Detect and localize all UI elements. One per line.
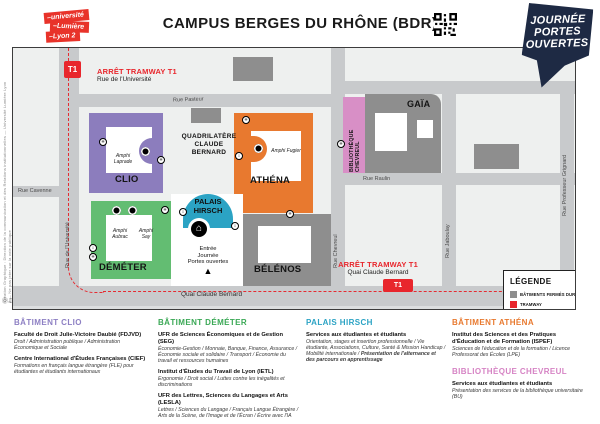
- logo-line: –Lyon 2: [46, 30, 81, 43]
- jpo-main-welcome: ⌂: [188, 218, 210, 240]
- demeter-label: DÉMÉTER: [99, 262, 147, 273]
- tram-stop-badge-t1: T1: [64, 61, 81, 78]
- gaia-label: GAÏA: [407, 99, 430, 109]
- ascenseur-icon: ✳: [286, 210, 294, 218]
- entry-name: Institut des Sciences et des Pratiques d…: [452, 332, 588, 346]
- tram-stop-right: ARRÊT TRAMWAY T1 Quai Claude Bernard: [313, 260, 443, 276]
- tram-stop-title: ARRÊT TRAMWAY T1: [97, 67, 177, 76]
- amphi-say-label: Amphi Say: [134, 229, 158, 240]
- campus-map: Rue Pasteur Rue Cavenne Rue de l'Univers…: [12, 47, 576, 310]
- legend-label: TRAMWAY: [520, 302, 542, 307]
- palais-line: HIRSCH: [183, 207, 233, 216]
- ascenseur-icon: ✳: [242, 116, 250, 124]
- credit-text: Création Graphique : Direction de la com…: [2, 78, 12, 303]
- street-label-jaboulay: Rue Jaboulay: [445, 198, 451, 258]
- quadrilatere-line: CLAUDE: [163, 141, 255, 149]
- elevateur-icon: ↕: [179, 208, 187, 216]
- street-label-raulin: Rue Raulin: [363, 176, 390, 182]
- elevateur-icon: ↕: [89, 244, 97, 252]
- clio-label: CLIO: [115, 174, 139, 185]
- tram-stop-title: ARRÊT TRAMWAY T1: [313, 260, 443, 269]
- entrance-arrow-icon: ▲: [194, 266, 222, 276]
- entry-desc: Ergonomie / Droit social / Luttes contre…: [158, 376, 300, 388]
- ascenseur-icon: ✳: [337, 140, 345, 148]
- section-entry: Services aux étudiantes et étudiants Ori…: [306, 332, 446, 364]
- section-athena: BÂTIMENT ATHÉNA Institut des Sciences et…: [452, 318, 588, 405]
- street-label-universite: Rue de l'Université: [65, 178, 71, 268]
- section-title: PALAIS HIRSCH: [306, 318, 446, 327]
- section-title: BIBLIOTHÈQUE CHEVREUL: [452, 367, 588, 376]
- entrance-line: Portes ouvertes: [171, 259, 245, 266]
- entry-desc: Présentation des services de la biblioth…: [452, 388, 588, 400]
- entrance-label: Entrée Journée Portes ouvertes: [171, 246, 245, 266]
- legend-title: LÉGENDE: [510, 277, 576, 286]
- badge-line: OUVERTES: [522, 37, 592, 51]
- street-label-pasteur: Rue Pasteur: [173, 96, 204, 103]
- legend: LÉGENDE BÂTIMENTS FERMÉS DURANT LA JPO T…: [503, 270, 576, 310]
- street-label-chevreul: Rue Chevreul: [333, 208, 339, 268]
- tram-stop-left: ARRÊT TRAMWAY T1 Rue de l'Université: [97, 67, 177, 83]
- ascenseur-icon: ✳: [161, 206, 169, 214]
- section-entry: Institut d'Études du Travail de Lyon (IE…: [158, 369, 300, 388]
- closed-building-swatch: [510, 291, 517, 298]
- entrance-line: Entrée: [171, 246, 245, 253]
- section-entry: UFR de Sciences Économiques et de Gestio…: [158, 332, 300, 364]
- university-logo: –université –Lumière –Lyon 2: [44, 11, 89, 42]
- belenos-label: BÉLÉNOS: [254, 264, 301, 275]
- tramway-swatch: [510, 301, 517, 308]
- entry-desc: Sciences de l'éducation et de la formati…: [452, 346, 588, 358]
- palais-hirsch-label: PALAIS HIRSCH: [183, 198, 233, 215]
- jpo-welcome-point: [141, 147, 150, 156]
- jpo-welcome-point: [254, 144, 263, 153]
- entry-name: Services aux étudiantes et étudiants: [452, 381, 588, 388]
- entry-name: UFR des Lettres, Sciences du Langages et…: [158, 393, 300, 407]
- amphi-aubrac-label: Amphi Aubrac: [107, 229, 133, 240]
- page-title: CAMPUS BERGES DU RHÔNE (BDR): [120, 15, 480, 32]
- entry-name: Faculté de Droit Julie-Victoire Daubié (…: [14, 332, 150, 339]
- section-entry: Faculté de Droit Julie-Victoire Daubié (…: [14, 332, 150, 351]
- bibliotheque-chevreul-label: BIBLIOTHÈQUE CHEVREUL: [344, 100, 366, 172]
- building-closed: [474, 144, 519, 169]
- entrance-line: Journée: [171, 253, 245, 260]
- building-closed: [233, 57, 273, 81]
- jpo-welcome-point: [112, 206, 121, 215]
- entry-desc: Droit / Administration publique / Admini…: [14, 339, 150, 351]
- ascenseur-icon: ✳: [89, 253, 97, 261]
- amphi-laprade-label: Amphi Laprade: [107, 154, 139, 165]
- elevateur-icon: ↕: [231, 222, 239, 230]
- amphi-fugier-label: Amphi Fugier: [271, 149, 301, 155]
- section-title: BÂTIMENT ATHÉNA: [452, 318, 588, 327]
- entry-desc: Économie-Gestion / Monnaie, Banque, Fina…: [158, 346, 300, 365]
- gaia-courtyard: [375, 113, 407, 151]
- gaia-notch: [417, 120, 433, 138]
- street-label-quai: Quai Claude Bernard: [181, 291, 242, 298]
- section-title: BÂTIMENT CLIO: [14, 318, 150, 327]
- section-palais-hirsch: PALAIS HIRSCH Services aux étudiantes et…: [306, 318, 446, 369]
- elevateur-icon: ↕: [235, 152, 243, 160]
- ascenseur-icon: ✳: [99, 138, 107, 146]
- street-label-grignard: Rue Professeur Grignard: [562, 106, 568, 216]
- section-entry: Centre International d'Études Françaises…: [14, 356, 150, 375]
- lib-line: CHEVREUL: [355, 100, 361, 172]
- section-entry: UFR des Lettres, Sciences du Langages et…: [158, 393, 300, 419]
- ascenseur-icon: ✳: [157, 156, 165, 164]
- quadrilatere-line: QUADRILATÈRE: [163, 133, 255, 141]
- entry-name: Institut d'Études du Travail de Lyon (IE…: [158, 369, 300, 376]
- legend-label: BÂTIMENTS FERMÉS DURANT LA JPO: [520, 292, 576, 297]
- entry-name: Services aux étudiantes et étudiants: [306, 332, 446, 339]
- tram-stop-subtitle: Rue de l'Université: [97, 76, 177, 83]
- entry-name: Centre International d'Études Françaises…: [14, 356, 150, 363]
- section-demeter: BÂTIMENT DÉMÉTER UFR de Sciences Économi…: [158, 318, 300, 424]
- section-clio: BÂTIMENT CLIO Faculté de Droit Julie-Vic…: [14, 318, 150, 380]
- entry-desc: Lettres / Sciences du Langage / Français…: [158, 407, 300, 419]
- section-entry: Institut des Sciences et des Pratiques d…: [452, 332, 588, 358]
- entry-desc: Formations en français langue étrangère …: [14, 363, 150, 375]
- street-label-cavenne: Rue Cavenne: [18, 188, 52, 194]
- jpo-welcome-point: [128, 206, 137, 215]
- campus-map-poster: Création Graphique : Direction de la com…: [0, 0, 600, 424]
- section-entry: Services aux étudiantes et étudiants Pré…: [452, 381, 588, 400]
- tram-stop-badge-t1: T1: [383, 279, 413, 292]
- qr-code-icon: [434, 13, 457, 36]
- tram-stop-subtitle: Quai Claude Bernard: [313, 269, 443, 276]
- legend-item: BÂTIMENTS FERMÉS DURANT LA JPO: [510, 291, 576, 298]
- section-title: BÂTIMENT DÉMÉTER: [158, 318, 300, 327]
- legend-item: TRAMWAY: [510, 301, 576, 308]
- home-icon: ⌂: [191, 221, 207, 237]
- entry-name: UFR de Sciences Économiques et de Gestio…: [158, 332, 300, 346]
- belenos-courtyard: [258, 226, 311, 263]
- athena-label: ATHÉNA: [250, 175, 290, 186]
- entry-desc: Orientation, stages et insertion profess…: [306, 339, 446, 364]
- building-closed: [191, 108, 221, 123]
- street-quai-bank: [13, 306, 576, 310]
